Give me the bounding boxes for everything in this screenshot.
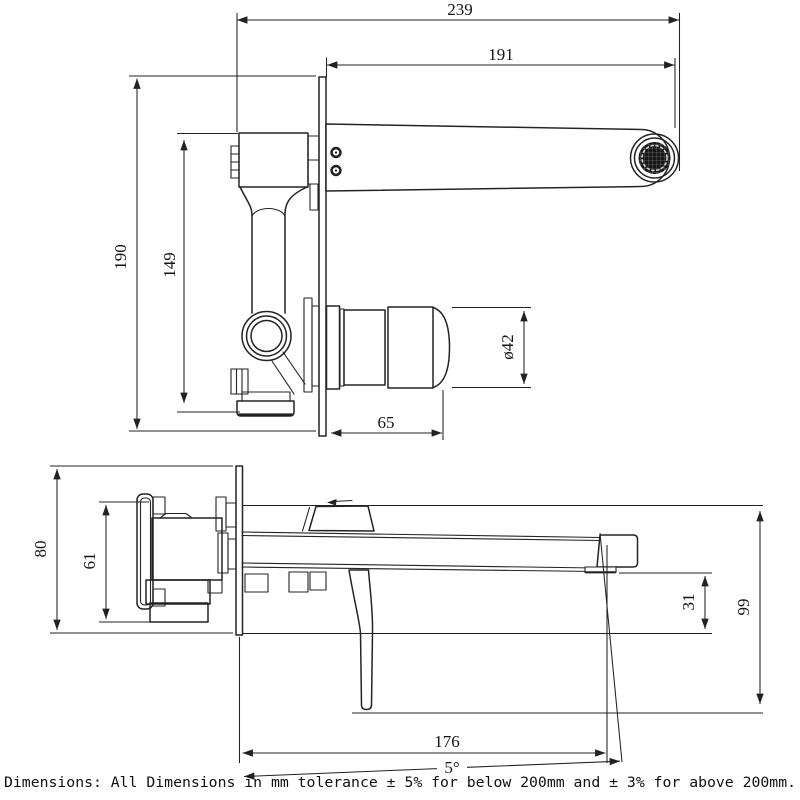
side-view <box>137 466 638 710</box>
lever-direction-arrow <box>334 501 352 502</box>
top-view-dimensions: 239 191 190 149 ø42 65 <box>111 0 680 440</box>
spout-plan <box>326 124 670 191</box>
dim-label-body-height: 149 <box>160 252 179 278</box>
wall-plate-side <box>236 466 243 635</box>
mounting-bracket <box>137 494 165 609</box>
dim-label-body-width: 61 <box>80 553 99 570</box>
side-port <box>231 369 248 394</box>
riser-tube-right <box>285 187 307 313</box>
tolerance-note: Dimensions: All Dimensions in mm toleran… <box>4 775 796 791</box>
valve-body-side <box>146 497 236 622</box>
dim-label-plate-width: 80 <box>31 541 50 558</box>
dim-label-handle-length: 65 <box>378 413 395 432</box>
handle-cap <box>433 308 450 388</box>
drawing-canvas: 239 191 190 149 ø42 65 <box>0 0 800 800</box>
handle-plan <box>327 306 450 389</box>
spout-side <box>242 532 638 592</box>
dim-label-tip-reach: 176 <box>434 732 460 751</box>
dim-label-total-drop: 99 <box>734 599 753 616</box>
riser-tube-left <box>240 187 252 313</box>
handle-side <box>303 499 375 710</box>
wall-plate-plan <box>319 77 326 436</box>
top-view <box>231 77 679 436</box>
lever-blade <box>349 570 373 710</box>
dim-label-overall-length: 239 <box>447 0 473 19</box>
dim-label-plate-height: 190 <box>111 244 130 270</box>
valve-body-plan <box>231 133 319 416</box>
dim-label-spout-reach: 191 <box>488 45 514 64</box>
dim-label-spout-drop: 31 <box>679 594 698 611</box>
dim-label-handle-diameter: ø42 <box>498 334 517 360</box>
faucet-technical-drawing: 239 191 190 149 ø42 65 <box>0 0 800 800</box>
